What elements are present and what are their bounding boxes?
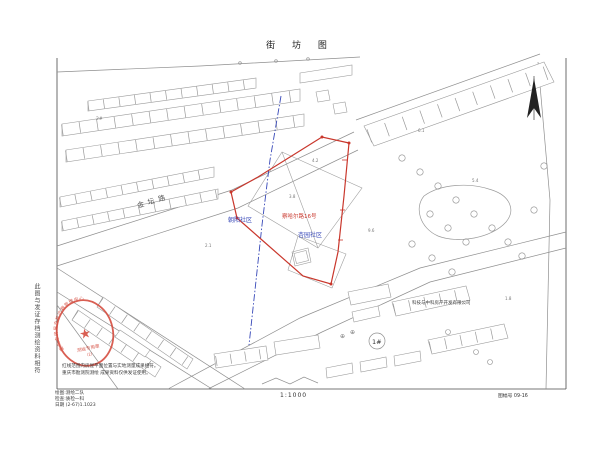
- building-rows-top-left: [60, 65, 352, 231]
- margin-info-line3: 日期 (2-67)1.1023: [55, 403, 96, 409]
- spot-label: 5.4: [472, 178, 479, 183]
- buildings-bottom-center: [214, 335, 421, 378]
- community-label-right: 杏园社区: [298, 231, 322, 239]
- spot-label: 2.1: [205, 243, 212, 248]
- sheet-number-label: 图幅号 09-16: [498, 392, 528, 399]
- spot-label: 1.8: [505, 296, 512, 301]
- community-label-left: 朝阳社区: [228, 216, 252, 224]
- building-1-label: 1#: [372, 338, 382, 346]
- spot-label: 4.2: [312, 158, 319, 163]
- spot-label: 2#: [96, 116, 103, 122]
- spot-label: 6.1: [418, 128, 425, 133]
- stamp-text-line2: (2): [86, 351, 93, 357]
- spot-label: 3.8: [289, 194, 296, 199]
- margin-info-block: 绘图:测绘二队 检查:质检一科 日期 (2-67)1.1023: [55, 391, 96, 409]
- scale-label: 1:1000: [280, 392, 307, 399]
- map-notes: 红线范围内房屋平面位置与实地测量成果相符。 重庆市勘测院测绘 成果资料仅供发证使…: [62, 364, 212, 377]
- scanned-site-plan-page: 街 坊 图: [0, 0, 600, 451]
- spot-label: 9.6: [368, 228, 375, 233]
- circle-cross-symbol: ⊕: [340, 333, 345, 340]
- circle-cross-symbol: ⊕: [350, 329, 355, 336]
- parcel-address-label: 察哈尔路16号: [282, 212, 317, 220]
- site-plan-drawing: 金坛路 察哈尔路16号 朝阳社区 杏园社区 1# 科技与中科房产开发有限公司 ⊕…: [0, 0, 600, 451]
- map-note-line2: 重庆市勘测院测绘 成果资料仅供发证使用。: [62, 371, 212, 378]
- side-vertical-note: 此图与发证存档测绘资料相符: [33, 283, 40, 395]
- building-block-top-right: [364, 62, 554, 146]
- company-label: 科技与中科房产开发有限公司: [412, 299, 471, 306]
